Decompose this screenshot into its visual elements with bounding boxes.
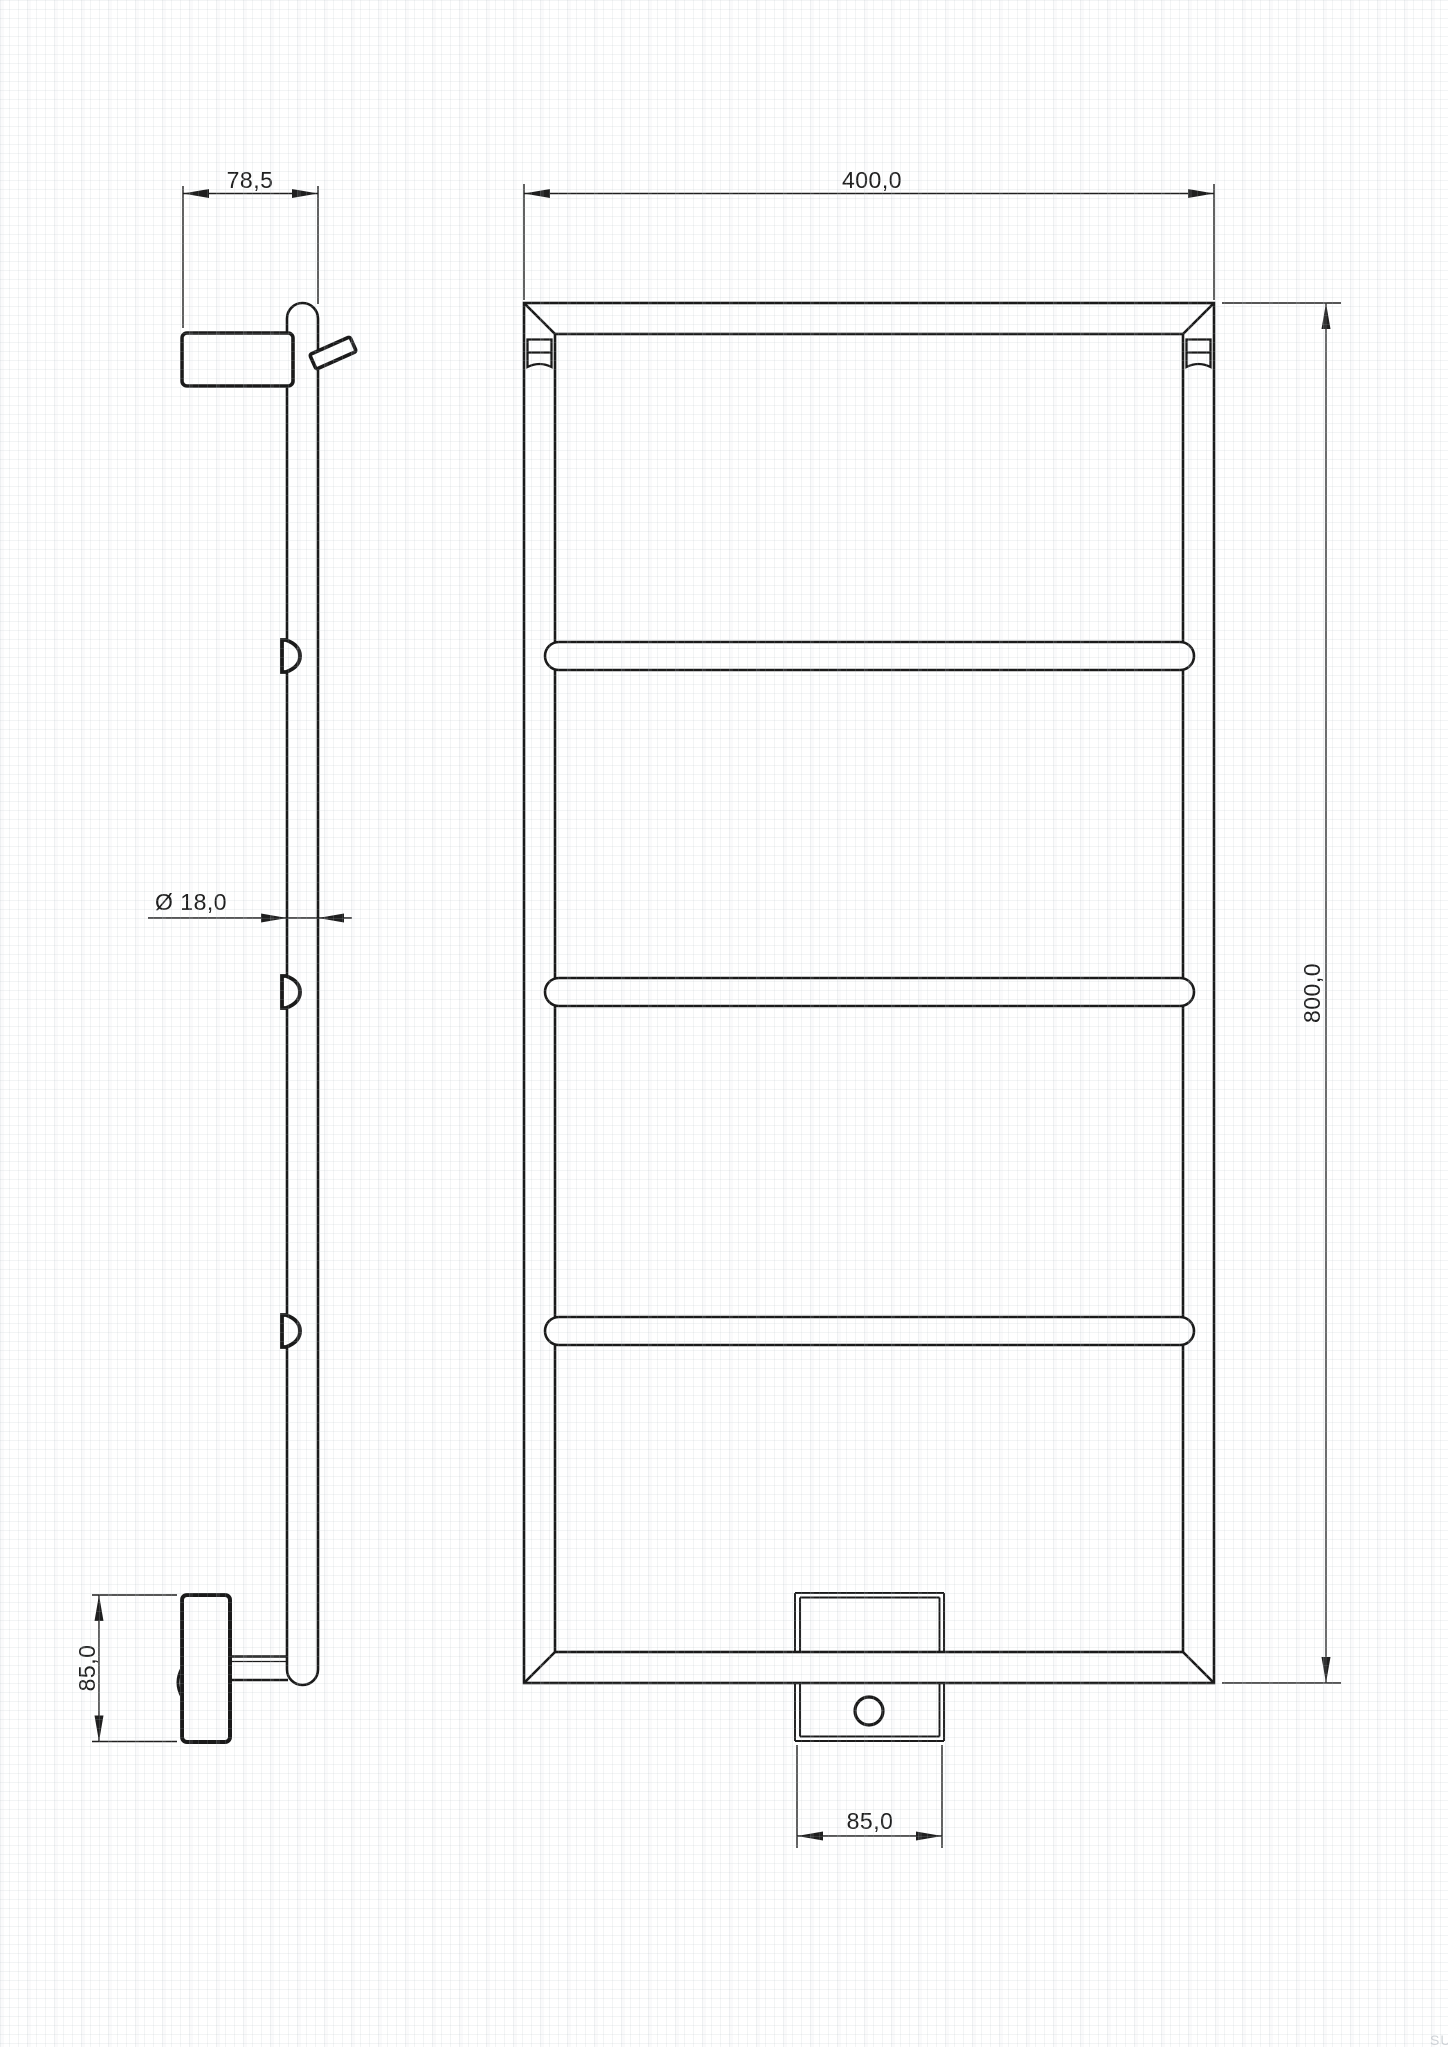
dim-tube-diameter: Ø 18,0	[148, 889, 352, 923]
dimension-arrow	[916, 1832, 942, 1841]
dimension-arrow	[797, 1832, 823, 1841]
technical-drawing-sheet: 78,5 400,0 800,0 Ø 18,0 85,0	[0, 0, 1448, 2047]
side-rung-nub-1	[282, 640, 300, 672]
front-view	[524, 303, 1214, 1741]
front-rung-1	[545, 642, 1194, 670]
side-rung-nub-3	[282, 1315, 300, 1347]
front-heater-indicator	[855, 1697, 883, 1725]
dimension-label: 78,5	[227, 167, 274, 193]
dimension-arrow	[1188, 189, 1214, 198]
dimension-arrow	[1322, 303, 1331, 329]
front-mount-bracket-left	[528, 340, 552, 368]
towel-rail-drawing: 78,5 400,0 800,0 Ø 18,0 85,0	[0, 0, 1448, 2047]
dimension-arrow	[95, 1716, 104, 1742]
front-rung-2	[545, 978, 1194, 1006]
dim-frame-width: 400,0	[524, 167, 1214, 300]
dim-side-bracket-height: 85,0	[74, 1595, 177, 1742]
side-bottom-bracket	[182, 1595, 230, 1742]
dimension-arrow	[183, 189, 209, 198]
dimension-label: 85,0	[847, 1808, 894, 1834]
dimension-arrow	[95, 1595, 104, 1621]
front-rung-3	[545, 1317, 1194, 1345]
dimension-label: Ø 18,0	[155, 889, 227, 915]
dim-heater-width: 85,0	[797, 1745, 942, 1848]
dim-frame-height: 800,0	[1222, 303, 1341, 1683]
watermark: SU	[1430, 2032, 1448, 2047]
dimension-arrow	[524, 189, 550, 198]
side-view	[178, 303, 356, 1742]
dimension-label: 400,0	[842, 167, 902, 193]
side-top-bracket	[182, 333, 293, 386]
dimension-arrow	[318, 914, 344, 923]
dimension-arrow	[261, 914, 287, 923]
dimension-arrow	[1322, 1657, 1331, 1683]
dimension-label: 800,0	[1299, 963, 1325, 1023]
side-rung-nub-2	[282, 976, 300, 1008]
side-bottom-connector	[230, 1657, 288, 1681]
front-mount-bracket-right	[1187, 340, 1211, 368]
dimension-label: 85,0	[74, 1645, 100, 1692]
dimension-arrow	[292, 189, 318, 198]
